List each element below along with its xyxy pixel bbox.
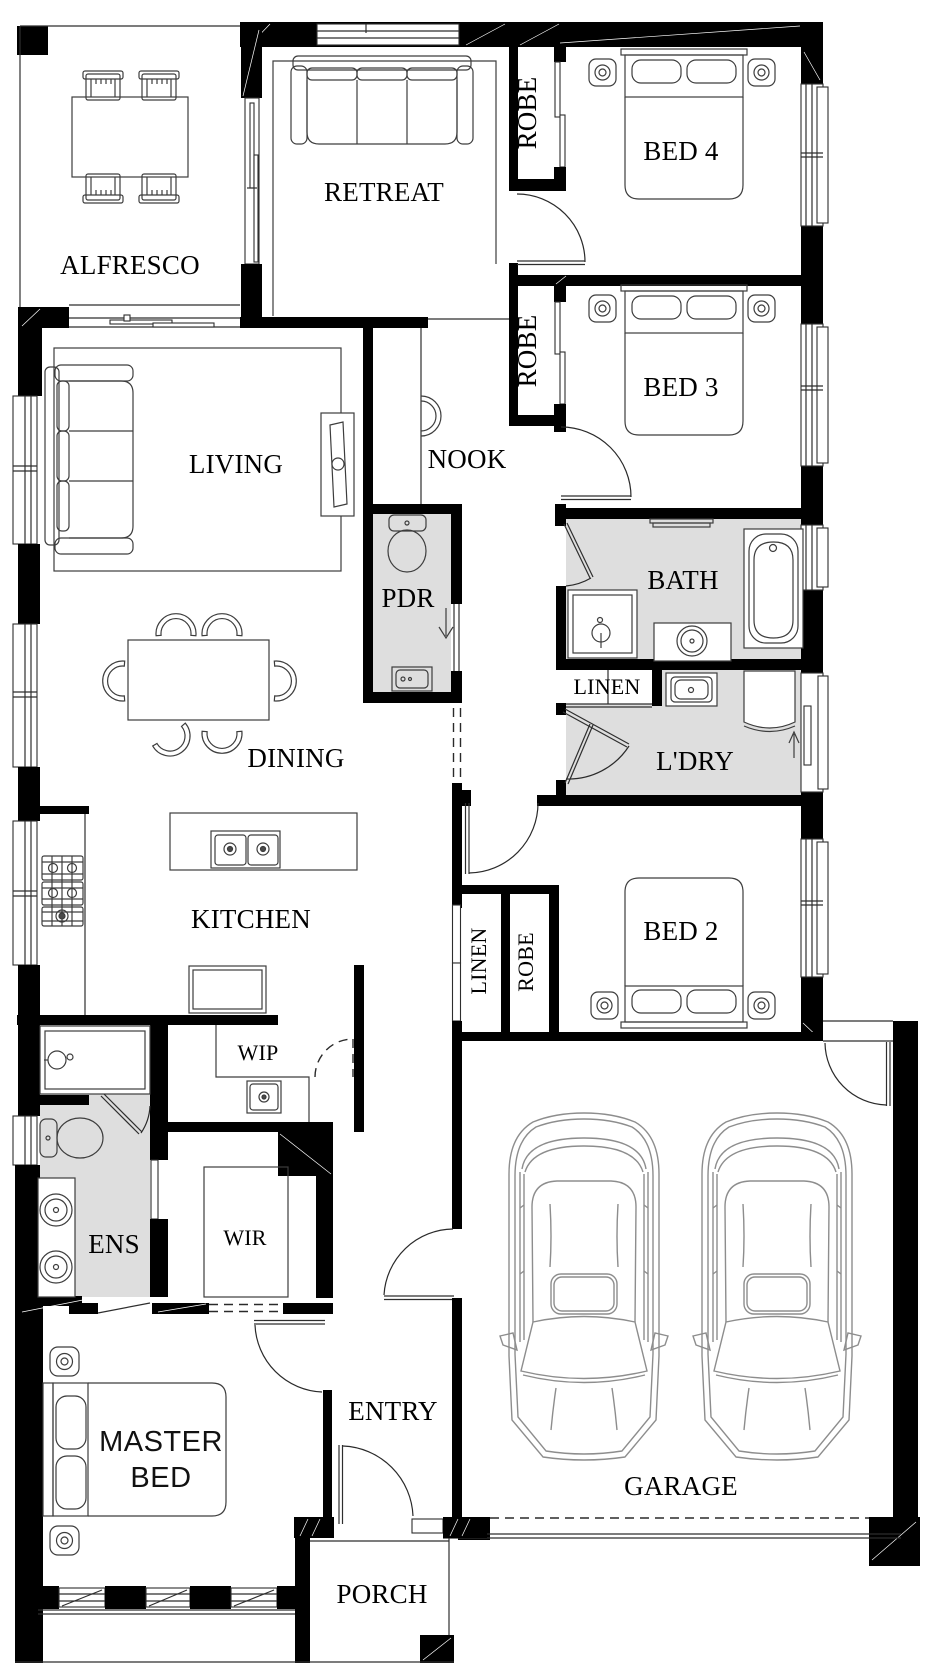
- svg-text:ROBE: ROBE: [513, 932, 538, 991]
- svg-text:BATH: BATH: [647, 565, 718, 595]
- svg-text:ENS: ENS: [88, 1229, 140, 1259]
- svg-text:ALFRESCO: ALFRESCO: [60, 250, 200, 280]
- svg-text:BED: BED: [130, 1462, 191, 1494]
- svg-text:ENTRY: ENTRY: [348, 1396, 438, 1426]
- svg-text:LINEN: LINEN: [574, 674, 641, 699]
- svg-text:MASTER: MASTER: [99, 1426, 223, 1458]
- svg-text:GARAGE: GARAGE: [624, 1471, 738, 1501]
- svg-text:BED 2: BED 2: [643, 916, 718, 946]
- svg-text:ROBE: ROBE: [512, 315, 542, 388]
- svg-text:ROBE: ROBE: [512, 77, 542, 150]
- svg-text:PDR: PDR: [381, 583, 434, 613]
- svg-text:LINEN: LINEN: [466, 928, 491, 995]
- svg-text:LIVING: LIVING: [189, 449, 283, 479]
- svg-text:BED 3: BED 3: [643, 372, 718, 402]
- svg-text:L'DRY: L'DRY: [656, 746, 734, 776]
- svg-text:PORCH: PORCH: [336, 1579, 427, 1609]
- svg-text:RETREAT: RETREAT: [324, 177, 444, 207]
- svg-text:BED 4: BED 4: [643, 136, 719, 166]
- svg-text:WIP: WIP: [238, 1040, 279, 1065]
- svg-text:WIR: WIR: [223, 1225, 266, 1250]
- svg-text:DINING: DINING: [247, 743, 344, 773]
- svg-text:KITCHEN: KITCHEN: [191, 904, 311, 934]
- svg-text:NOOK: NOOK: [428, 444, 507, 474]
